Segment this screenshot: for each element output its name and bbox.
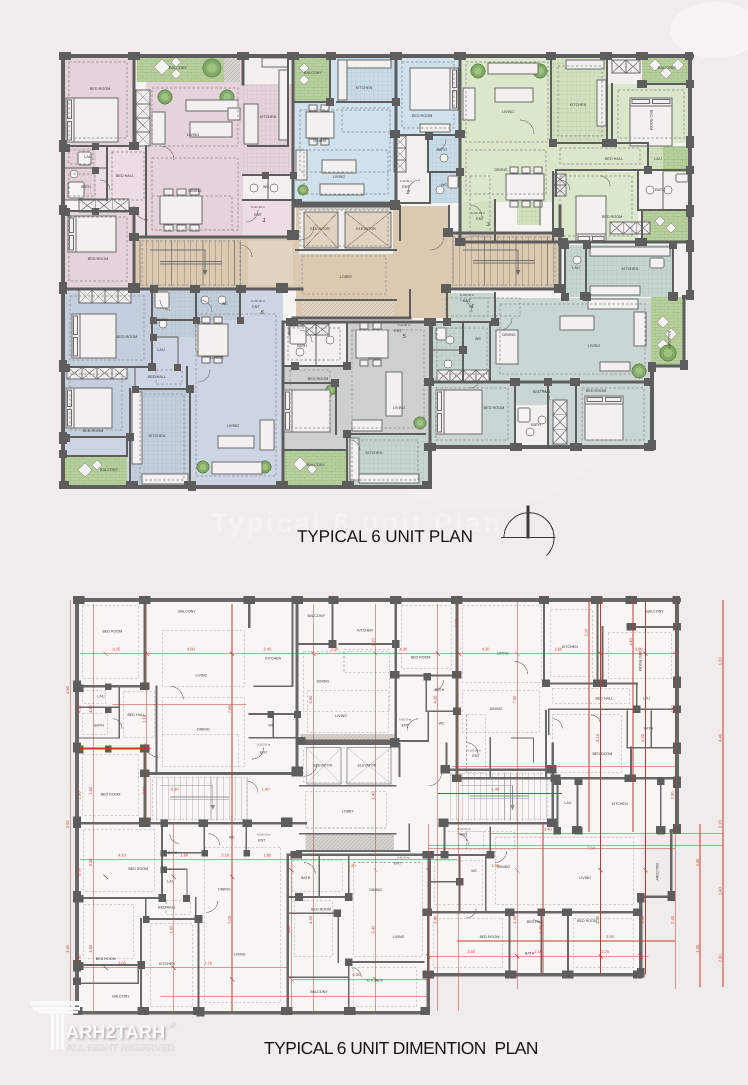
svg-text:BED ROOM: BED ROOM <box>88 257 109 261</box>
svg-text:KITCHEN: KITCHEN <box>612 802 628 806</box>
svg-text:4.30: 4.30 <box>399 647 407 652</box>
svg-text:LIVING: LIVING <box>195 674 207 678</box>
svg-text:LOBBY: LOBBY <box>340 275 353 279</box>
svg-text:3.05: 3.05 <box>118 961 126 966</box>
svg-text:LIVING: LIVING <box>579 876 591 880</box>
svg-text:4.30: 4.30 <box>308 915 313 923</box>
svg-text:WC: WC <box>475 337 482 341</box>
svg-text:DINING: DINING <box>497 865 510 869</box>
svg-text:BALCONY: BALCONY <box>308 614 326 618</box>
svg-text:WC: WC <box>439 722 445 726</box>
svg-text:2: 2 <box>405 189 410 196</box>
svg-text:KITCHEN: KITCHEN <box>356 86 373 90</box>
svg-text:LIVING: LIVING <box>227 424 239 428</box>
svg-text:WC: WC <box>268 724 274 728</box>
svg-text:ENT: ENT <box>460 833 468 837</box>
svg-text:ELEVATOR: ELEVATOR <box>358 764 377 768</box>
svg-text:1: 1 <box>262 217 265 224</box>
svg-text:2.30: 2.30 <box>695 858 700 866</box>
svg-text:BATH: BATH <box>437 148 447 152</box>
svg-text:ELEVATOR: ELEVATOR <box>314 764 333 768</box>
svg-text:0-42.00 m: 0-42.00 m <box>397 856 410 860</box>
svg-text:4.10: 4.10 <box>118 853 126 858</box>
svg-text:BED ROOM: BED ROOM <box>103 630 123 634</box>
svg-text:0-112.50 m: 0-112.50 m <box>257 743 271 747</box>
svg-text:BED ROOM: BED ROOM <box>649 110 653 131</box>
svg-text:BED ROOM: BED ROOM <box>577 919 597 923</box>
svg-text:ENT: ENT <box>402 724 410 728</box>
svg-text:2.60: 2.60 <box>554 647 562 652</box>
svg-text:4.60: 4.60 <box>670 705 675 713</box>
svg-text:LAU: LAU <box>564 801 571 805</box>
svg-text:BALCONY: BALCONY <box>667 331 671 350</box>
svg-text:3.70: 3.70 <box>601 949 609 954</box>
svg-text:BALCONY: BALCONY <box>100 468 119 472</box>
svg-text:3.30: 3.30 <box>77 868 82 876</box>
svg-text:3.40: 3.40 <box>433 915 438 923</box>
svg-text:1.20: 1.20 <box>640 733 645 741</box>
svg-text:DINING: DINING <box>368 357 381 361</box>
svg-text:KITCHEN: KITCHEN <box>260 115 277 119</box>
svg-text:2.10: 2.10 <box>534 949 542 954</box>
svg-text:BATH: BATH <box>81 185 91 189</box>
svg-text:2.20: 2.20 <box>718 820 723 828</box>
svg-text:DINING: DINING <box>210 356 223 360</box>
svg-text:BED HALL: BED HALL <box>148 375 166 379</box>
svg-text:ARH2TARH: ARH2TARH <box>66 1022 165 1042</box>
svg-text:LIVING: LIVING <box>187 133 199 137</box>
svg-text:BATH: BATH <box>94 724 104 728</box>
svg-text:BALCONY: BALCONY <box>658 66 677 70</box>
svg-text:LAU: LAU <box>643 697 650 701</box>
svg-text:4.30: 4.30 <box>482 647 490 652</box>
svg-text:DINING: DINING <box>317 680 330 684</box>
svg-text:3.25: 3.25 <box>112 647 120 652</box>
svg-text:1.50: 1.50 <box>88 786 93 794</box>
svg-text:KITCHEN: KITCHEN <box>570 103 587 107</box>
svg-text:ELEVATOR: ELEVATOR <box>356 227 376 231</box>
svg-text:5.50: 5.50 <box>308 695 313 703</box>
svg-text:3.40: 3.40 <box>512 915 517 923</box>
svg-text:2.10: 2.10 <box>142 786 147 794</box>
svg-text:2.40: 2.40 <box>670 915 675 923</box>
svg-text:ELEVATOR: ELEVATOR <box>310 227 330 231</box>
svg-text:1.20: 1.20 <box>718 657 723 665</box>
svg-text:BED ROOM: BED ROOM <box>484 406 505 410</box>
svg-text:0-105.00 m: 0-105.00 m <box>460 293 475 297</box>
svg-text:KITCHEN: KITCHEN <box>265 657 281 661</box>
svg-text:BED ROOM: BED ROOM <box>602 215 623 219</box>
svg-text:BATH: BATH <box>525 952 535 956</box>
svg-text:BED ROOM: BED ROOM <box>311 908 331 912</box>
svg-text:DINING: DINING <box>494 168 507 172</box>
svg-text:WC: WC <box>441 183 448 187</box>
svg-text:LIVING: LIVING <box>234 953 246 957</box>
svg-text:DINING: DINING <box>313 139 326 143</box>
svg-text:BED ROOM: BED ROOM <box>592 752 612 756</box>
svg-text:BED ROOM: BED ROOM <box>90 87 111 91</box>
svg-text:2.10: 2.10 <box>221 853 229 858</box>
svg-text:1.40: 1.40 <box>371 791 376 799</box>
svg-text:ENT: ENT <box>394 862 402 866</box>
svg-text:ENT: ENT <box>402 185 410 189</box>
svg-text:ENT: ENT <box>472 754 480 758</box>
svg-text:BATH: BATH <box>158 318 168 322</box>
svg-text:2.30: 2.30 <box>670 791 675 799</box>
svg-text:ENT: ENT <box>260 750 268 754</box>
svg-text:BED ROOM: BED ROOM <box>411 656 431 660</box>
svg-text:TYPICAL 6 UNIT DIMENTION PLAN: TYPICAL 6 UNIT DIMENTION PLAN <box>264 1038 538 1058</box>
svg-text:BED ROOM: BED ROOM <box>480 935 500 939</box>
svg-text:DINING: DINING <box>490 707 503 711</box>
svg-text:7.00: 7.00 <box>227 915 232 923</box>
svg-text:BATH: BATH <box>297 344 307 348</box>
svg-text:3.30: 3.30 <box>88 858 93 866</box>
svg-text:BALCONY: BALCONY <box>655 863 659 881</box>
svg-text:BALCONY: BALCONY <box>169 66 188 70</box>
svg-text:BED ROOM: BED ROOM <box>128 867 148 871</box>
svg-text:LIVING: LIVING <box>333 175 345 179</box>
svg-text:4.30: 4.30 <box>88 705 93 713</box>
svg-text:LOBBY: LOBBY <box>342 810 355 814</box>
svg-text:0-105.00 m: 0-105.00 m <box>251 299 266 303</box>
svg-text:BED HALL: BED HALL <box>116 174 134 178</box>
svg-text:BED ROOM: BED ROOM <box>96 957 116 961</box>
svg-text:2.75: 2.75 <box>204 961 212 966</box>
svg-text:6.30: 6.30 <box>353 972 361 977</box>
svg-text:BALCONY: BALCONY <box>304 71 323 75</box>
svg-text:TYPICAL 6 UNIT PLAN: TYPICAL 6 UNIT PLAN <box>297 527 473 546</box>
svg-text:ALL RIGHT RESERVED: ALL RIGHT RESERVED <box>66 1043 175 1054</box>
svg-text:LAU: LAU <box>84 155 92 159</box>
svg-text:2.10: 2.10 <box>171 787 179 792</box>
svg-text:LAU: LAU <box>97 695 104 699</box>
svg-text:ENT: ENT <box>252 305 260 309</box>
svg-text:2.60: 2.60 <box>65 820 70 828</box>
svg-text:ENT: ENT <box>258 839 266 843</box>
svg-text:BED HALL: BED HALL <box>533 390 551 394</box>
svg-text:3.10: 3.10 <box>595 733 600 741</box>
svg-text:1.60: 1.60 <box>180 853 188 858</box>
svg-text:DINING: DINING <box>502 333 515 337</box>
svg-text:0-105.00 m: 0-105.00 m <box>467 748 481 752</box>
svg-text:3.00: 3.00 <box>467 949 475 954</box>
svg-text:3.40: 3.40 <box>595 915 600 923</box>
svg-text:LAU: LAU <box>654 157 662 161</box>
svg-text:0-42.00 m: 0-42.00 m <box>399 718 412 722</box>
svg-text:1.40: 1.40 <box>718 887 723 895</box>
svg-text:BED HALL: BED HALL <box>527 920 545 924</box>
svg-text:4.30: 4.30 <box>77 705 82 713</box>
svg-text:BATH: BATH <box>655 188 665 192</box>
svg-text:®: ® <box>168 1019 174 1028</box>
svg-text:4.30: 4.30 <box>286 925 291 933</box>
svg-text:1.40: 1.40 <box>491 863 499 868</box>
svg-text:BED ROOM: BED ROOM <box>308 377 329 381</box>
svg-text:LAU: LAU <box>157 348 165 352</box>
svg-text:LIVING: LIVING <box>393 406 405 410</box>
svg-text:DINING: DINING <box>197 727 210 731</box>
svg-text:2.45: 2.45 <box>264 647 272 652</box>
svg-text:3.30: 3.30 <box>331 647 339 652</box>
svg-text:ENT: ENT <box>254 213 262 217</box>
svg-text:1.40: 1.40 <box>538 925 543 933</box>
svg-text:DINING: DINING <box>218 887 231 891</box>
svg-text:1.60: 1.60 <box>169 925 174 933</box>
svg-text:2.30: 2.30 <box>718 954 723 962</box>
svg-text:7.65: 7.65 <box>227 705 232 713</box>
svg-text:LIVING: LIVING <box>335 714 347 718</box>
svg-text:4.50: 4.50 <box>65 686 70 694</box>
svg-text:WC: WC <box>471 869 477 873</box>
svg-text:0-42.00 m: 0-42.00 m <box>400 179 413 183</box>
svg-text:1.10: 1.10 <box>142 714 147 722</box>
svg-text:BALCONY: BALCONY <box>646 610 664 614</box>
svg-text:WC: WC <box>263 185 270 189</box>
svg-text:BATH: BATH <box>301 876 311 880</box>
svg-text:1.40: 1.40 <box>544 827 552 832</box>
svg-text:4.50: 4.50 <box>88 944 93 952</box>
svg-text:KITCHEN: KITCHEN <box>562 645 578 649</box>
svg-text:ENT: ENT <box>463 299 471 303</box>
svg-text:BED HALL: BED HALL <box>596 697 614 701</box>
svg-text:LIVING: LIVING <box>588 344 600 348</box>
svg-text:BED HALL: BED HALL <box>158 906 176 910</box>
svg-text:0-105.00 m: 0-105.00 m <box>257 833 271 837</box>
svg-text:BED ROOM: BED ROOM <box>101 793 121 797</box>
svg-text:BED ROOM: BED ROOM <box>117 335 138 339</box>
svg-text:1.80: 1.80 <box>264 853 272 858</box>
svg-text:4.60: 4.60 <box>187 647 195 652</box>
svg-text:BATH: BATH <box>168 851 178 855</box>
svg-text:KITCHEN: KITCHEN <box>366 451 383 455</box>
svg-text:BALCONY: BALCONY <box>178 610 196 614</box>
svg-text:7.50: 7.50 <box>587 846 595 851</box>
svg-text:4.40: 4.40 <box>718 733 723 741</box>
svg-text:BED HALL: BED HALL <box>605 157 623 161</box>
svg-text:4.30: 4.30 <box>77 954 82 962</box>
svg-text:BED ROOM: BED ROOM <box>638 651 642 671</box>
svg-text:2.10: 2.10 <box>454 618 459 626</box>
svg-text:LAU: LAU <box>572 266 580 270</box>
svg-text:KITCHEN: KITCHEN <box>367 978 383 982</box>
svg-text:LIVING: LIVING <box>502 110 514 114</box>
svg-text:DINING: DINING <box>188 189 201 193</box>
svg-text:BALCONY: BALCONY <box>307 463 326 467</box>
svg-text:BALCONY: BALCONY <box>112 995 130 999</box>
svg-text:1.50: 1.50 <box>77 791 82 799</box>
svg-text:BATH: BATH <box>644 726 654 730</box>
svg-text:3.80: 3.80 <box>635 647 643 652</box>
svg-text:5.40: 5.40 <box>371 925 376 933</box>
svg-text:ENT: ENT <box>476 217 484 221</box>
svg-text:KITCHEN: KITCHEN <box>622 267 639 271</box>
svg-text:1.60: 1.60 <box>695 944 700 952</box>
svg-text:BED ROOM: BED ROOM <box>83 429 104 433</box>
svg-text:BED ROOM: BED ROOM <box>586 389 607 393</box>
svg-text:BED ROOM: BED ROOM <box>412 114 433 118</box>
svg-text:0-105.00 m: 0-105.00 m <box>471 211 486 215</box>
svg-text:ENT: ENT <box>394 329 402 333</box>
svg-text:2.10: 2.10 <box>371 638 376 646</box>
svg-text:BATH: BATH <box>531 423 541 427</box>
svg-text:0-42.00 m: 0-42.00 m <box>398 323 411 327</box>
svg-text:1.40: 1.40 <box>491 787 499 792</box>
svg-text:4.30: 4.30 <box>348 863 356 868</box>
svg-text:2.10: 2.10 <box>584 628 589 636</box>
svg-text:WC: WC <box>222 302 229 306</box>
svg-text:2.50: 2.50 <box>606 934 614 939</box>
svg-text:KITCHEN: KITCHEN <box>149 434 166 438</box>
svg-text:7.00: 7.00 <box>512 695 517 703</box>
svg-text:KITCHEN: KITCHEN <box>159 962 175 966</box>
svg-text:KITCHEN: KITCHEN <box>357 629 373 633</box>
svg-text:4.30: 4.30 <box>433 695 438 703</box>
svg-text:LIVING: LIVING <box>393 935 405 939</box>
svg-text:4.50: 4.50 <box>65 944 70 952</box>
svg-text:1.50: 1.50 <box>640 915 645 923</box>
svg-text:0-112.50 m: 0-112.50 m <box>251 205 266 209</box>
svg-text:1.40: 1.40 <box>262 787 270 792</box>
svg-text:BATH: BATH <box>435 688 445 692</box>
svg-text:1.40: 1.40 <box>628 638 633 646</box>
